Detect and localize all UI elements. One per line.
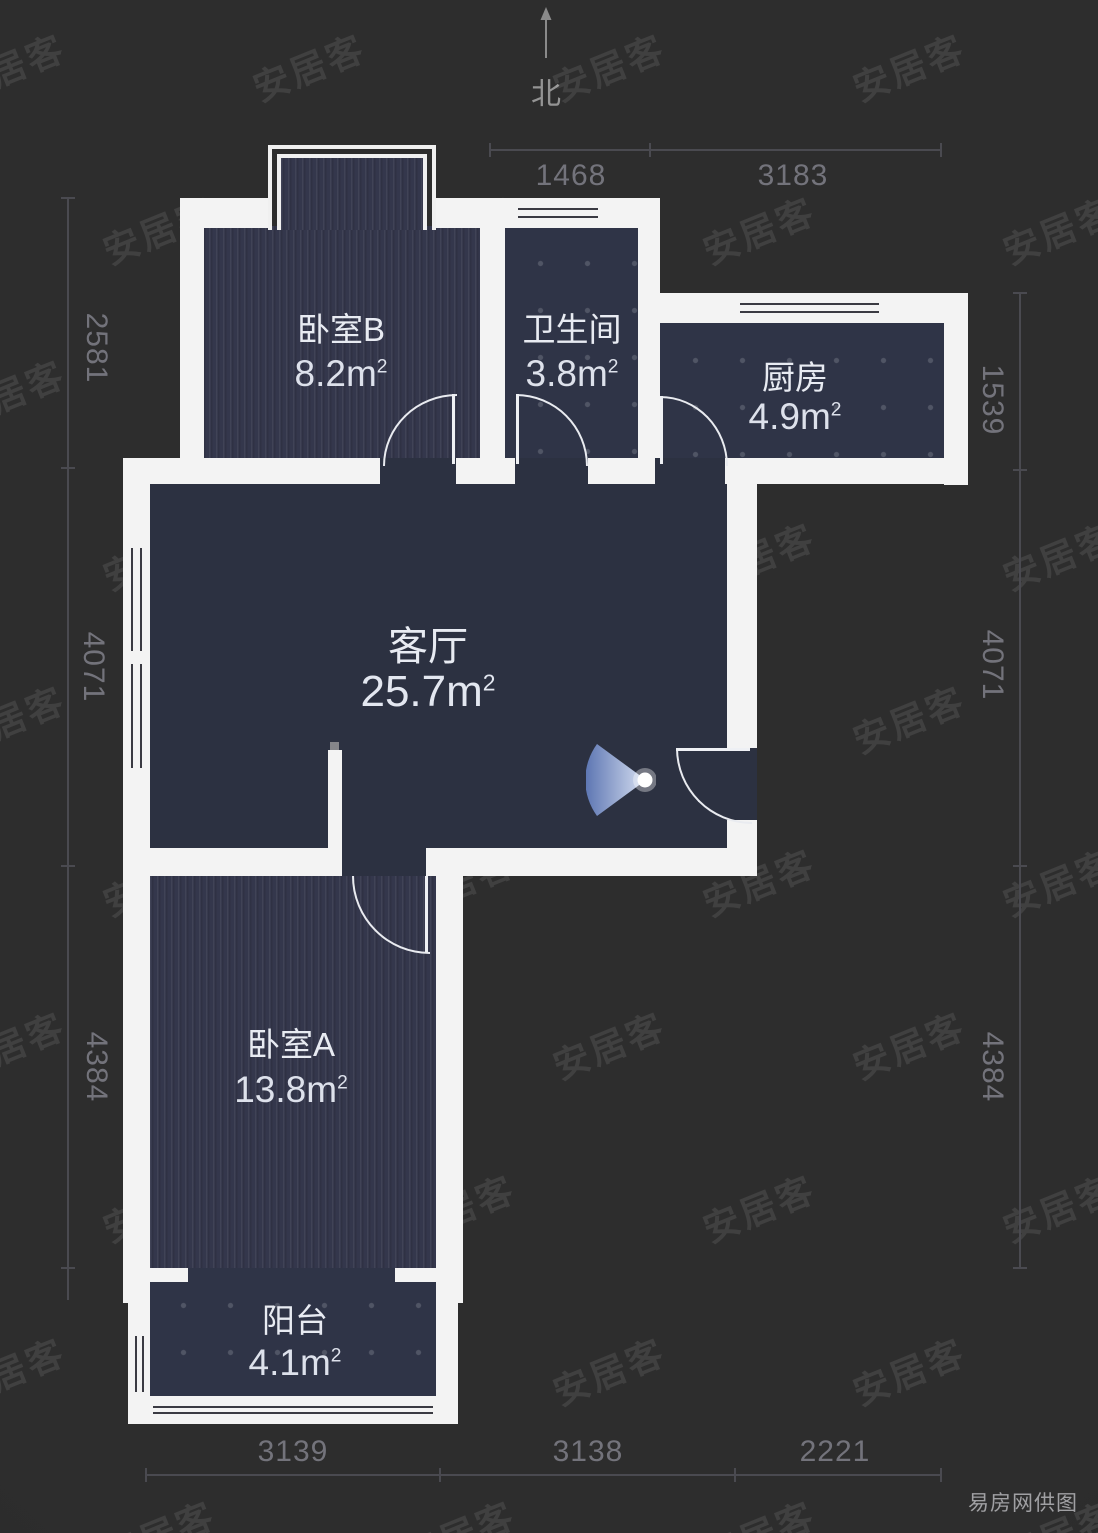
wall-stub-cap: [330, 742, 339, 750]
window-glass-line: [153, 1406, 433, 1408]
dimension-label: 4384: [974, 997, 1010, 1137]
watermark-text: 安居客: [845, 998, 973, 1090]
window: [737, 295, 882, 321]
wall: [180, 198, 204, 480]
wall: [123, 458, 380, 484]
room-area-value: 4.1: [249, 1342, 300, 1383]
watermark-text: 安居客: [845, 672, 973, 764]
wall: [180, 198, 270, 228]
window-glass-line: [518, 216, 598, 218]
watermark-text: 安居客: [845, 1324, 973, 1416]
dimension-label: 1468: [501, 158, 641, 194]
room-area-unit: m: [577, 353, 608, 394]
dimension-tick: [145, 1468, 147, 1482]
dimension-tick: [61, 467, 75, 469]
room-area-unit-sup: 2: [337, 1073, 348, 1094]
north-arrow-icon: [528, 49, 564, 66]
wall: [140, 1268, 188, 1282]
window-glass-line: [740, 303, 879, 305]
room-area-value: 4.9: [749, 396, 800, 437]
watermark-text: 安居客: [245, 20, 373, 112]
room-name: 卧室A: [247, 1018, 335, 1066]
room-area: 3.8m2: [526, 353, 619, 395]
window: [128, 1333, 150, 1395]
wall: [638, 198, 660, 483]
dimension-tick: [940, 1468, 942, 1482]
watermark-text: 安居客: [995, 183, 1098, 275]
window: [123, 545, 150, 771]
watermark-text: 安居客: [845, 20, 973, 112]
dimension-tick: [489, 143, 491, 157]
door-leaf: [516, 394, 519, 464]
room-name: 厨房: [762, 351, 828, 399]
window: [150, 1400, 436, 1420]
watermark-text: 安居客: [545, 998, 673, 1090]
room-area: 13.8m2: [234, 1069, 348, 1111]
north-label: 北: [516, 69, 576, 113]
door-leaf: [452, 394, 455, 464]
bay-window: [268, 145, 436, 230]
wall: [456, 458, 515, 484]
dimension-label: 2221: [765, 1434, 905, 1470]
wall: [395, 1268, 438, 1282]
dimension-label: 1539: [974, 330, 1010, 470]
room-area-unit-sup: 2: [483, 669, 496, 695]
dimension-label: 3139: [223, 1434, 363, 1470]
room-area: 25.7m2: [360, 667, 495, 717]
window-glass-line: [142, 1336, 144, 1392]
room-area-unit-sup: 2: [377, 357, 388, 378]
floorplan-canvas: 北 易房网供图 安居客安居客安居客安居客安居客安居客安居客安居客安居客安居客安居…: [0, 0, 1098, 1533]
dimension-label: 4384: [78, 997, 114, 1137]
dimension-label: 4071: [75, 597, 111, 737]
room-area: 4.9m2: [749, 396, 842, 438]
room-area: 8.2m2: [295, 353, 388, 395]
wall-stub: [328, 750, 342, 852]
room-area-unit-sup: 2: [608, 357, 619, 378]
dimension-label: 4071: [974, 595, 1010, 735]
room-area-value: 13.8: [234, 1069, 306, 1110]
watermark-text: 安居客: [695, 1161, 823, 1253]
dimension-tick: [1013, 292, 1027, 294]
dimension-tick: [61, 1267, 75, 1269]
window-transom: [123, 651, 150, 664]
dimension-label: 3183: [723, 158, 863, 194]
watermark-text: 安居客: [995, 835, 1098, 927]
room-area-unit: m: [346, 353, 377, 394]
dimension-tick: [940, 143, 942, 157]
dimension-tick: [1013, 865, 1027, 867]
watermark-text: 安居客: [995, 509, 1098, 601]
wall: [123, 876, 150, 1303]
watermark-text: 安居客: [0, 346, 72, 438]
dimension-tick: [1013, 469, 1027, 471]
room-area-unit: m: [306, 1069, 337, 1110]
opening-connector: [188, 1268, 395, 1282]
door-leaf: [676, 748, 750, 751]
dimension-tick: [61, 865, 75, 867]
watermark-text: 安居客: [95, 1487, 223, 1533]
dimension-line-right: [1019, 293, 1021, 1268]
room-area-value: 25.7: [360, 667, 446, 716]
watermark-text: 安居客: [0, 1324, 72, 1416]
window-glass-line: [135, 1336, 137, 1392]
image-credit: 易房网供图: [968, 1487, 1078, 1517]
dimension-line-top: [490, 149, 941, 151]
watermark-text: 安居客: [995, 1161, 1098, 1253]
room-area-value: 8.2: [295, 353, 346, 394]
window-glass-line: [740, 311, 879, 313]
dimension-tick: [439, 1468, 441, 1482]
room-area-unit: m: [300, 1342, 331, 1383]
room-area-unit: m: [800, 396, 831, 437]
wall: [725, 458, 968, 484]
door-leaf: [425, 876, 428, 952]
window-glass-line: [153, 1412, 433, 1414]
dimension-tick: [649, 143, 651, 157]
wall: [436, 876, 463, 1303]
room-name: 卧室B: [297, 303, 385, 351]
dimension-line-left: [67, 198, 69, 1300]
wall: [588, 458, 655, 484]
window: [515, 200, 601, 226]
room-area-unit-sup: 2: [831, 400, 842, 421]
room-name: 客厅: [388, 614, 468, 672]
dimension-tick: [61, 197, 75, 199]
room-area-value: 3.8: [526, 353, 577, 394]
watermark-text: 安居客: [395, 1487, 523, 1533]
wall: [426, 848, 757, 876]
room-name: 卫生间: [523, 303, 622, 351]
wall: [123, 848, 342, 876]
entry-light-icon: [586, 733, 656, 827]
dimension-tick: [734, 1468, 736, 1482]
dimension-label: 3138: [518, 1434, 658, 1470]
room-area-unit-sup: 2: [331, 1346, 342, 1367]
window-glass-line: [518, 208, 598, 210]
room-area-unit: m: [446, 667, 483, 716]
bay-window-glass: [277, 154, 427, 230]
dimension-tick: [1013, 1267, 1027, 1269]
dimension-line-bottom: [146, 1474, 941, 1476]
wall: [480, 228, 505, 458]
watermark-text: 安居客: [0, 672, 72, 764]
watermark-text: 安居客: [0, 998, 72, 1090]
dimension-label: 2581: [78, 278, 114, 418]
north-indicator: 北: [516, 6, 576, 113]
door-leaf: [660, 396, 663, 464]
watermark-text: 安居客: [0, 20, 72, 112]
wall: [944, 293, 968, 485]
room-area: 4.1m2: [249, 1342, 342, 1384]
room-name: 阳台: [262, 1294, 328, 1342]
watermark-text: 安居客: [695, 1487, 823, 1533]
opening-connector: [342, 848, 426, 876]
watermark-text: 安居客: [545, 1324, 673, 1416]
wall: [727, 484, 757, 748]
watermark-text: 安居客: [695, 183, 823, 275]
